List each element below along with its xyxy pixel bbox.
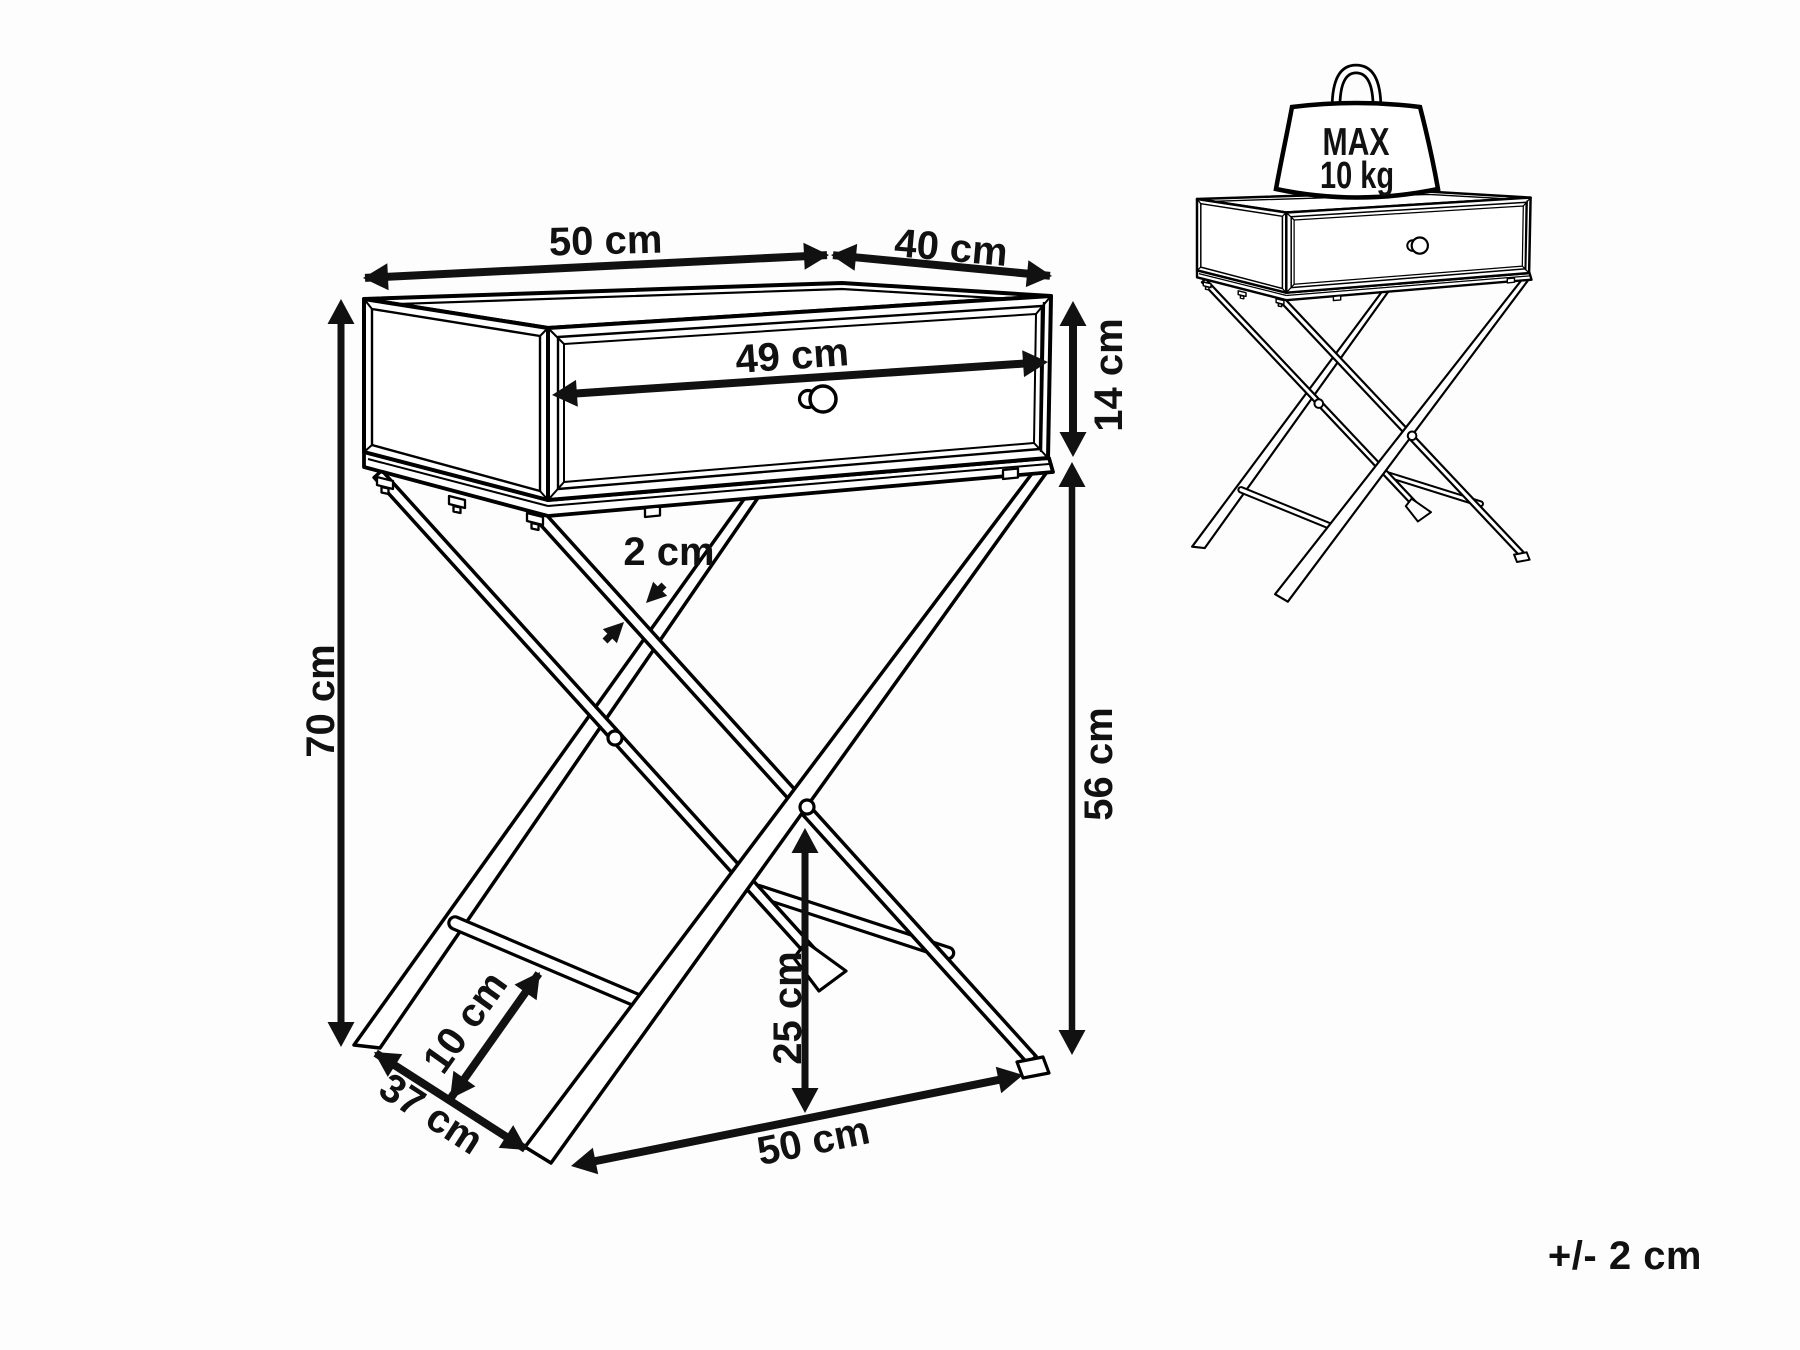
svg-text:56 cm: 56 cm xyxy=(1077,707,1121,820)
svg-text:10 kg: 10 kg xyxy=(1320,155,1394,197)
svg-text:49 cm: 49 cm xyxy=(734,330,850,382)
svg-text:50 cm: 50 cm xyxy=(548,218,663,265)
svg-text:14 cm: 14 cm xyxy=(1087,318,1131,431)
svg-text:2 cm: 2 cm xyxy=(623,530,714,574)
svg-text:25 cm: 25 cm xyxy=(766,951,810,1064)
svg-text:70 cm: 70 cm xyxy=(299,644,343,757)
svg-text:+/- 2 cm: +/- 2 cm xyxy=(1548,1234,1702,1278)
